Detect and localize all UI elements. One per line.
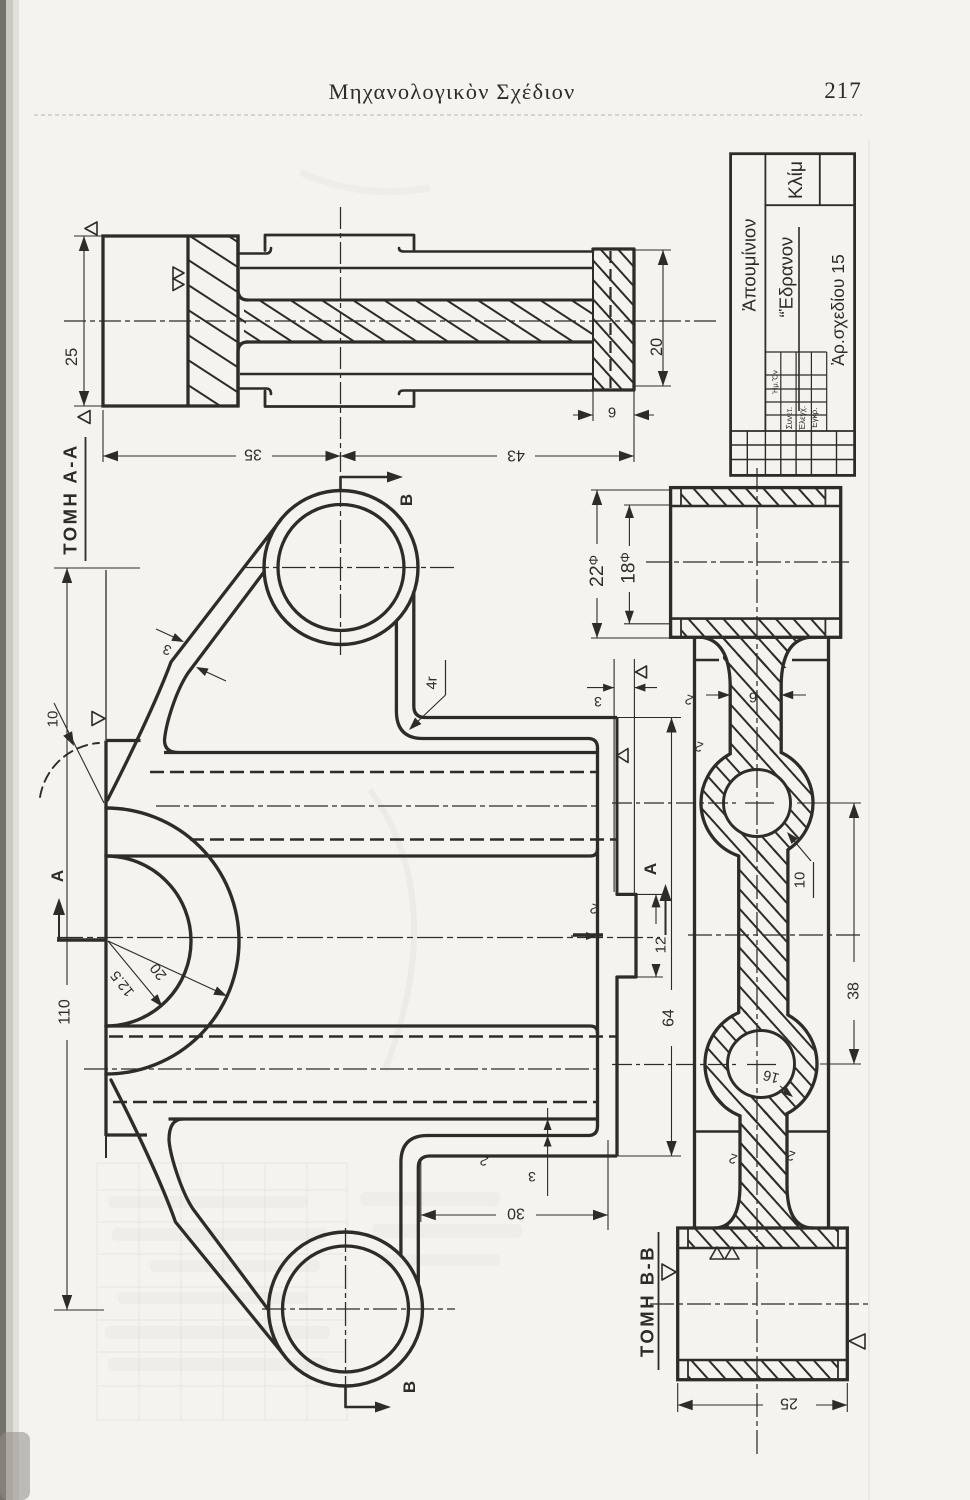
svg-text:43: 43: [507, 446, 525, 463]
svg-text:10: 10: [791, 872, 808, 889]
svg-text:Β: Β: [400, 1381, 419, 1393]
svg-text:20: 20: [648, 338, 666, 356]
svg-text:110: 110: [57, 999, 74, 1025]
svg-text:25: 25: [63, 348, 81, 366]
svg-text:“Ἑδρανον: “Ἑδρανον: [775, 237, 796, 318]
svg-text:9: 9: [749, 689, 757, 706]
svg-text:30: 30: [507, 1204, 525, 1221]
svg-text:Ἀρ.σχεδίου 15: Ἀρ.σχεδίου 15: [828, 254, 848, 366]
svg-text:Β: Β: [397, 494, 416, 506]
svg-text:Κλίμ: Κλίμ: [785, 161, 807, 199]
svg-text:Μηχανολογικὸν Σχέδιον: Μηχανολογικὸν Σχέδιον: [329, 79, 576, 104]
svg-text:Ἡμ.Ὄν: Ἡμ.Ὄν: [771, 370, 780, 394]
svg-text:ΤΟΜΗ Β-Β: ΤΟΜΗ Β-Β: [636, 1245, 657, 1357]
svg-text:35: 35: [244, 445, 262, 462]
svg-text:12: 12: [652, 937, 669, 954]
svg-text:Α: Α: [641, 863, 660, 875]
svg-text:Α: Α: [48, 870, 67, 882]
svg-text:64: 64: [661, 1009, 678, 1027]
svg-text:217: 217: [824, 78, 862, 103]
svg-text:3: 3: [594, 694, 602, 710]
svg-text:25: 25: [780, 1394, 798, 1411]
svg-text:ΤΟΜΗ Α-Α: ΤΟΜΗ Α-Α: [59, 443, 80, 554]
svg-text:4r: 4r: [423, 676, 440, 689]
svg-text:Ἀπουμίνιον: Ἀπουμίνιον: [738, 219, 759, 312]
svg-text:Συνετ.: Συνετ.: [785, 407, 794, 429]
svg-text:9: 9: [608, 404, 616, 421]
svg-text:Ἐλεγχ.: Ἐλεγχ.: [798, 406, 807, 430]
svg-text:Ἐγκρ.: Ἐγκρ.: [810, 408, 819, 429]
svg-text:38: 38: [846, 982, 863, 1000]
svg-text:3: 3: [528, 1169, 536, 1185]
